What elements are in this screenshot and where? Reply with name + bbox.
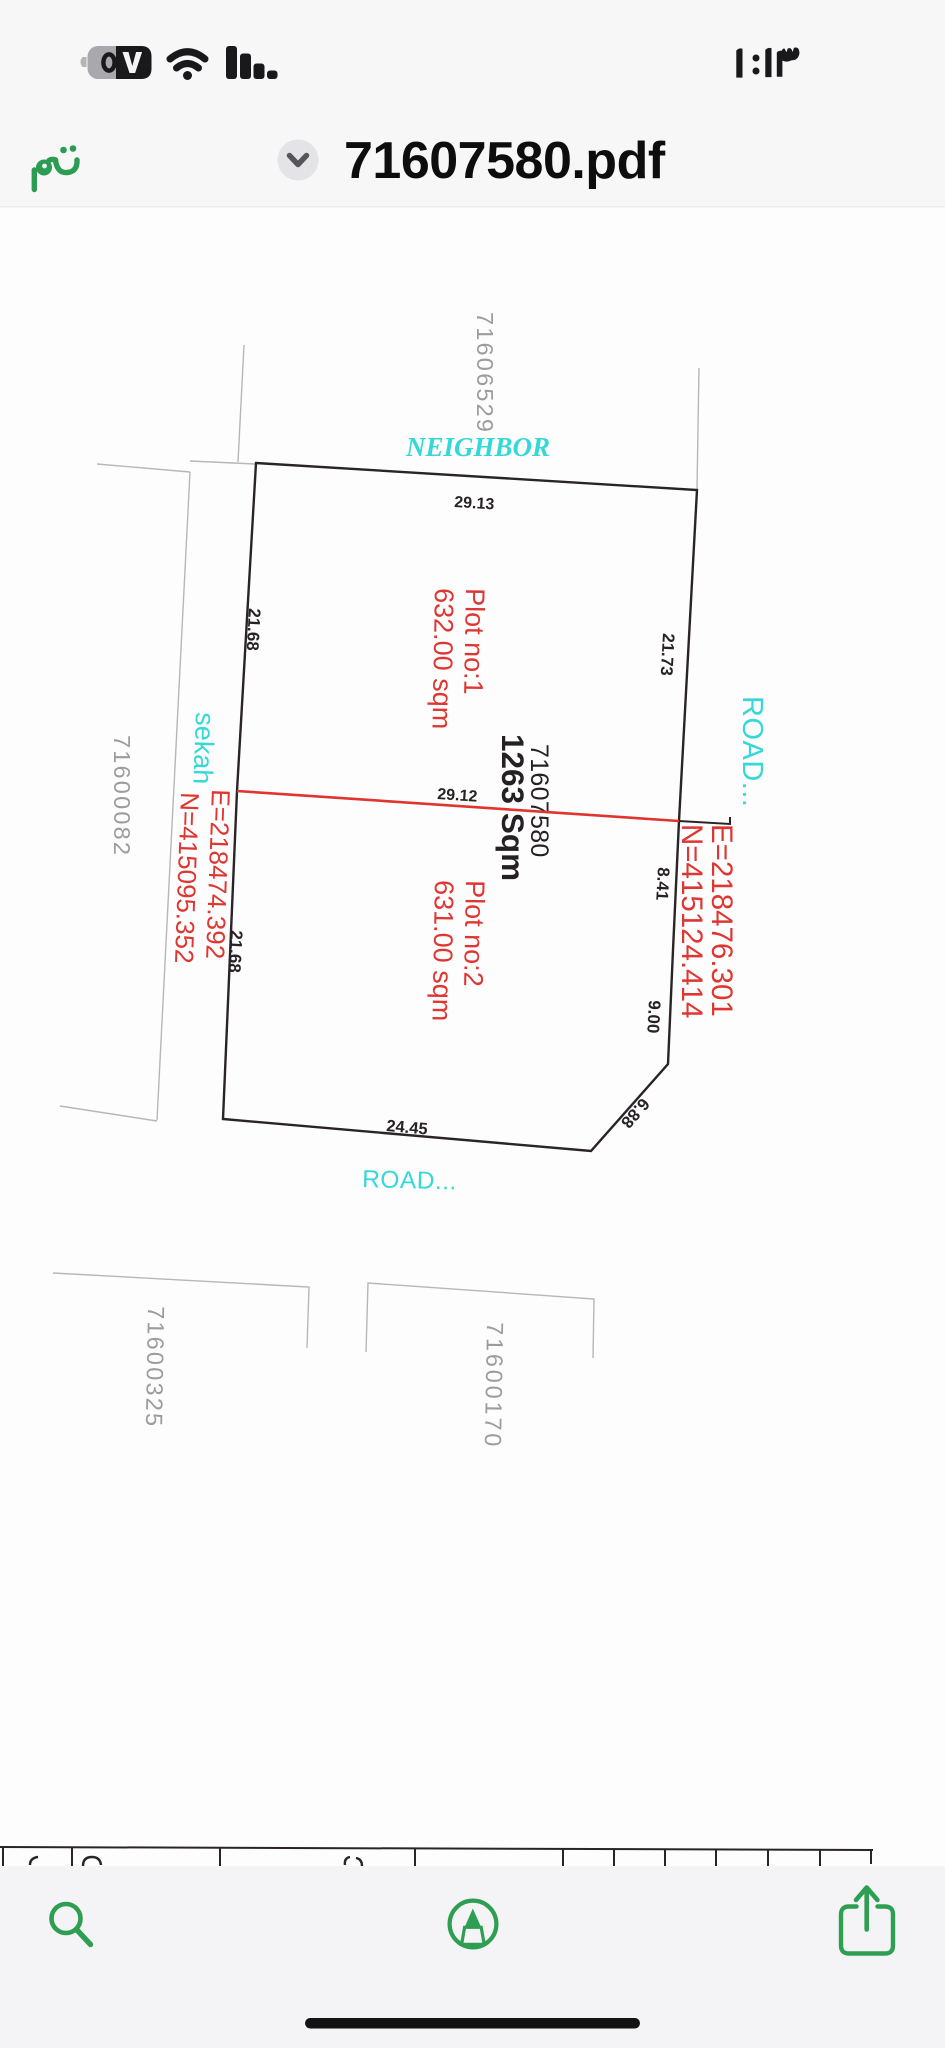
svg-text:632.00 sqm: 632.00 sqm: [427, 588, 459, 730]
svg-text:71606529: 71606529: [472, 312, 498, 434]
svg-text:71600082: 71600082: [109, 735, 135, 857]
svg-text:71600170: 71600170: [480, 1322, 508, 1449]
svg-text:21.73: 21.73: [657, 633, 678, 676]
svg-text:Plot no:2: Plot no:2: [458, 880, 490, 987]
svg-text:24.45: 24.45: [386, 1117, 429, 1139]
svg-text:NEIGHBOR: NEIGHBOR: [405, 432, 550, 462]
svg-text:21.68: 21.68: [243, 608, 264, 651]
svg-text:9.00: 9.00: [643, 1000, 664, 1034]
svg-text:Plot no:1: Plot no:1: [458, 588, 490, 695]
svg-text:N=415095.352: N=415095.352: [169, 792, 205, 964]
svg-text:8.41: 8.41: [652, 867, 673, 901]
svg-text:71607580.pdf: 71607580.pdf: [344, 132, 666, 190]
svg-text:29.12: 29.12: [437, 786, 478, 806]
svg-text:N=415124.414: N=415124.414: [675, 824, 708, 1018]
svg-text:ROAD...: ROAD...: [736, 696, 768, 807]
svg-text:ROAD...: ROAD...: [362, 1166, 457, 1195]
svg-text:sekah: sekah: [187, 712, 219, 785]
svg-text:21.68: 21.68: [225, 930, 246, 973]
svg-text:E=218476.301: E=218476.301: [705, 824, 738, 1017]
svg-text:29.13: 29.13: [454, 494, 495, 513]
svg-text:631.00 sqm: 631.00 sqm: [427, 880, 459, 1022]
svg-text:1263 Sqm: 1263 Sqm: [495, 734, 531, 881]
svg-text:71600325: 71600325: [141, 1306, 169, 1429]
